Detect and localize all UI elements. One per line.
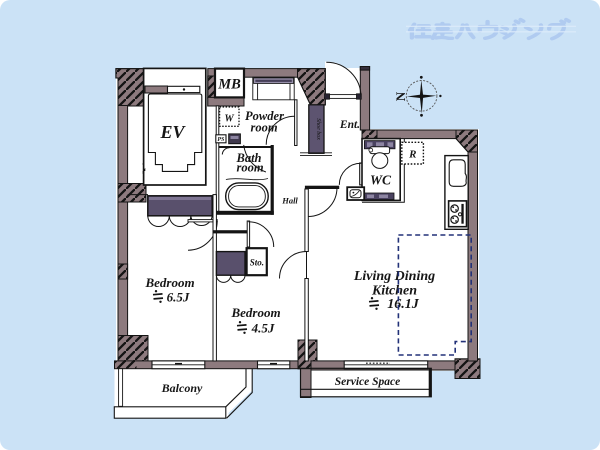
svg-text:N: N [393, 91, 408, 101]
svg-text:Service Space: Service Space [335, 376, 400, 388]
svg-text:Living Dining: Living Dining [353, 269, 435, 284]
svg-text:Bedroom: Bedroom [230, 305, 280, 320]
svg-text:Balcony: Balcony [161, 381, 203, 395]
svg-text:PS: PS [217, 137, 225, 143]
svg-text:Ent.: Ent. [339, 119, 360, 131]
svg-text:16.1J: 16.1J [387, 297, 420, 312]
svg-text:room: room [250, 121, 277, 135]
svg-text:Hall: Hall [281, 196, 298, 206]
svg-text:Sto.: Sto. [250, 258, 264, 268]
svg-text:R: R [408, 149, 416, 161]
svg-text:Bedroom: Bedroom [144, 275, 194, 290]
svg-text:Shoe box: Shoe box [315, 118, 321, 140]
svg-text:W: W [224, 114, 234, 125]
svg-text:room: room [236, 161, 263, 175]
svg-text:EV: EV [159, 122, 186, 142]
svg-text:WC: WC [370, 173, 392, 188]
svg-text:6.5J: 6.5J [167, 290, 190, 305]
svg-text:4.5J: 4.5J [251, 321, 275, 336]
svg-text:MB: MB [217, 77, 241, 93]
